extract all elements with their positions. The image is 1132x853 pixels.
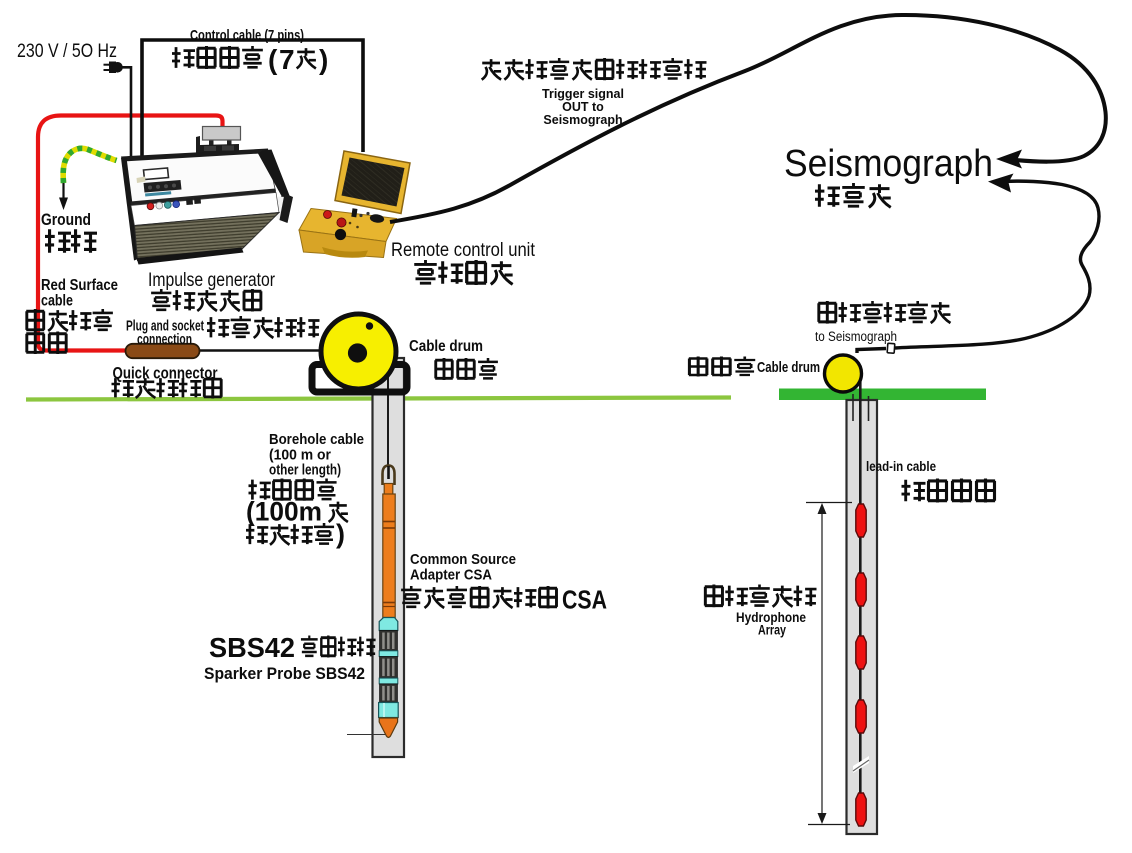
- svg-text:Impulse generator: Impulse generator: [148, 270, 276, 291]
- svg-text:Control cable (7 pins): Control cable (7 pins): [190, 27, 304, 44]
- svg-text:to Seismograph: to Seismograph: [815, 329, 897, 344]
- svg-text:(: (: [268, 44, 278, 75]
- svg-text:other length): other length): [269, 463, 341, 479]
- svg-text:230 V / 5O Hz: 230 V / 5O Hz: [17, 41, 117, 62]
- svg-text:(100m: (100m: [246, 497, 322, 527]
- svg-text:Sparker Probe SBS42: Sparker Probe SBS42: [204, 664, 365, 683]
- svg-text:OUT to: OUT to: [562, 100, 604, 114]
- svg-text:Adapter CSA: Adapter CSA: [410, 567, 492, 584]
- svg-text:CSA: CSA: [562, 585, 607, 615]
- svg-text:Borehole cable: Borehole cable: [269, 432, 364, 448]
- svg-text:Ground: Ground: [41, 210, 91, 229]
- svg-text:Quick connector: Quick connector: [113, 364, 218, 383]
- svg-text:Common Source: Common Source: [410, 551, 516, 568]
- svg-text:): ): [319, 44, 328, 75]
- svg-text:Red Surface: Red Surface: [41, 277, 118, 294]
- svg-text:): ): [336, 519, 345, 549]
- svg-text:Cable drum: Cable drum: [757, 359, 820, 376]
- svg-text:cable: cable: [41, 293, 73, 310]
- svg-text:Cable drum: Cable drum: [409, 338, 483, 355]
- svg-text:Trigger signal: Trigger signal: [542, 87, 624, 101]
- svg-text:7: 7: [279, 44, 295, 75]
- svg-text:Remote control unit: Remote control unit: [391, 239, 535, 261]
- svg-text:connection: connection: [137, 332, 192, 348]
- svg-text:lead-in cable: lead-in cable: [866, 458, 936, 474]
- svg-text:Seismograph: Seismograph: [543, 113, 622, 127]
- svg-text:SBS42: SBS42: [209, 632, 295, 663]
- svg-text:(100 m or: (100 m or: [269, 448, 331, 464]
- svg-text:Array: Array: [758, 622, 786, 638]
- svg-text:Seismograph: Seismograph: [784, 143, 993, 185]
